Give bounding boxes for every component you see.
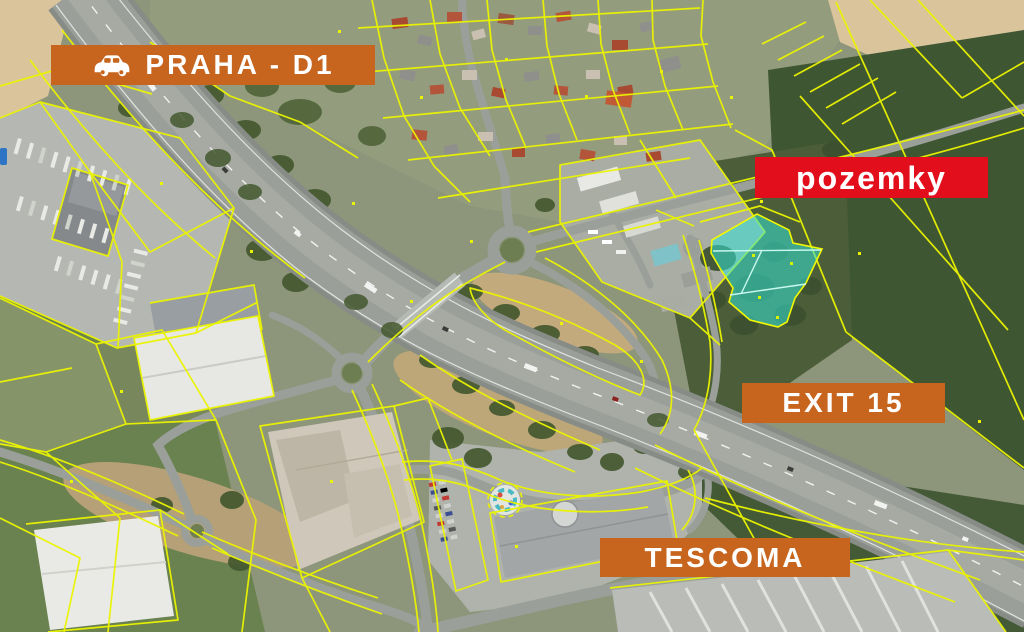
bottom-left-building [34, 516, 174, 630]
parcels-label: pozemky [796, 162, 947, 194]
exit-label: EXIT 15 [782, 389, 904, 417]
map-svg [0, 0, 1024, 632]
car-icon [91, 50, 133, 80]
praha-d1-badge: PRAHA - D1 [51, 45, 375, 85]
store-label: TESCOMA [645, 544, 806, 572]
exit-15-badge: EXIT 15 [742, 383, 945, 423]
pozemky-badge: pozemky [755, 157, 988, 198]
aerial-map-canvas: PRAHA - D1 pozemky EXIT 15 TESCOMA [0, 0, 1024, 632]
blue-marker [0, 148, 7, 165]
tescoma-badge: TESCOMA [600, 538, 850, 577]
route-label: PRAHA - D1 [145, 51, 334, 79]
